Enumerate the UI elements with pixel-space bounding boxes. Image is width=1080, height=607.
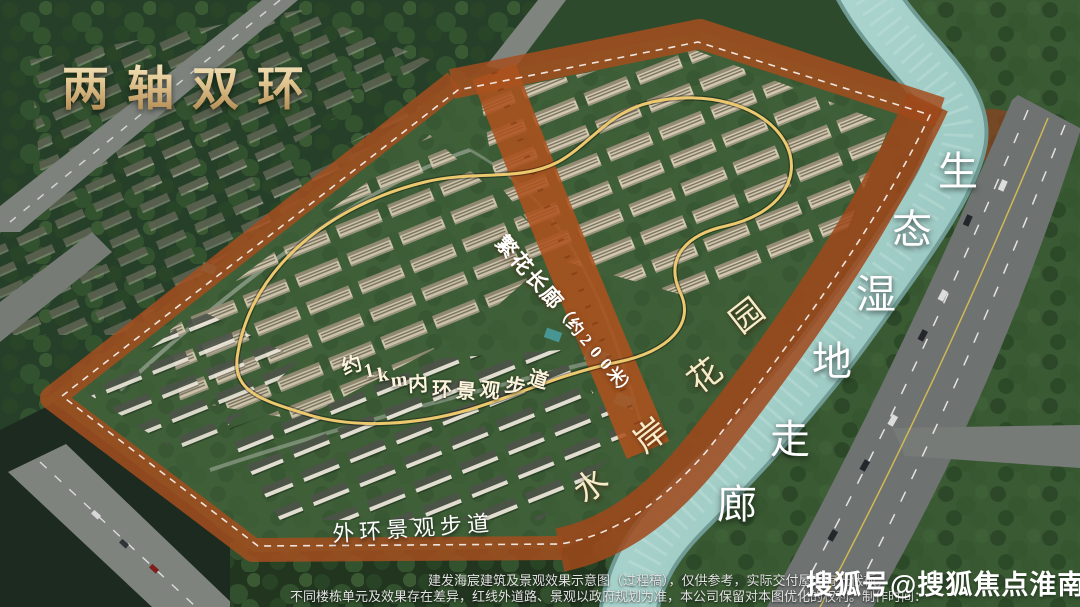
- label-inner-char: m: [390, 369, 409, 391]
- label-inner-char: 观: [479, 380, 502, 403]
- label-inner-char: 景: [455, 381, 477, 403]
- label-inner-char: 内: [407, 374, 428, 395]
- label-wetland-char: 廊: [717, 485, 757, 525]
- label-wetland-char: 态: [892, 210, 932, 250]
- label-wetland-char: 生: [938, 152, 978, 192]
- label-wetland-char: 走: [770, 420, 810, 460]
- label-inner-char: 环: [432, 380, 452, 400]
- aerial-site-rendering: 两轴双环 生态湿地走廊 水岸花园 繁花长廊（约200米） 约1km内环景观步道 …: [0, 0, 1080, 607]
- label-wetland-char: 地: [812, 342, 852, 382]
- label-wetland-char: 湿: [856, 275, 896, 315]
- watermark-sohu: 搜狐号@搜狐焦点淮南站: [806, 563, 1080, 602]
- page-title: 两轴双环: [62, 50, 322, 119]
